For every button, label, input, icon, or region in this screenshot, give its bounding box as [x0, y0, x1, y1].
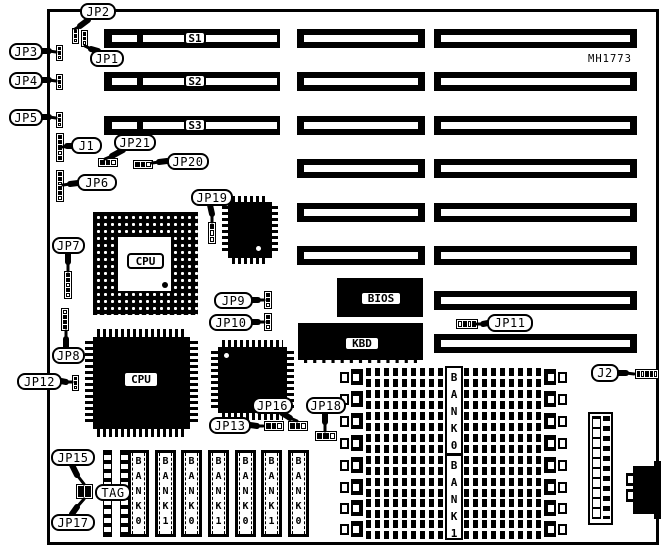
slot-stripe-short [112, 78, 137, 85]
jp10-header-pin-open [266, 325, 270, 329]
expansion-slot-mid [297, 203, 425, 222]
simm-latch-notch [548, 396, 554, 403]
callout-jp17: JP17 [51, 514, 95, 531]
jp12-header-pin-open [74, 386, 77, 389]
jp16-header-pin-closed [290, 423, 295, 429]
sram-socket-4: B A N K 1 [208, 450, 229, 537]
cpu-qfp-pins-right [190, 341, 198, 425]
qfp-small-lower-pins-left [211, 351, 218, 409]
simm-latch-bracket [544, 457, 556, 473]
slot-stripe [441, 340, 630, 347]
qfp-small-upper-pins-right [272, 206, 278, 254]
slot-stripe [304, 165, 418, 172]
simm-pins [464, 390, 542, 409]
jp9-header-pin-open [266, 303, 270, 307]
jp3-header-pin-closed [58, 47, 61, 50]
sram-socket-7: B A N K 0 [288, 450, 309, 537]
jp13-header-pin-closed [266, 423, 271, 429]
jp6-header-pin-closed [58, 177, 62, 181]
j1-header-pin-closed [58, 156, 62, 160]
jp18-header-pin-closed [317, 433, 322, 439]
simm-latch [558, 394, 567, 405]
simm-latch [340, 438, 349, 449]
simm-bank-label: B A N K 0 [445, 366, 463, 455]
callout-jp20: JP20 [167, 153, 209, 170]
slot-stripe [441, 209, 630, 216]
callout-jp21: JP21 [114, 134, 156, 151]
jp7-header [64, 271, 72, 299]
callout-jp19: JP19 [191, 189, 233, 206]
expansion-slot-mid [297, 246, 425, 265]
jp2-header-pin-closed [74, 30, 77, 33]
expansion-slot-right [434, 29, 637, 48]
expansion-slot-mid [297, 159, 425, 178]
jp21-header-pin-closed [100, 160, 105, 165]
simm-pins [366, 390, 445, 409]
jp10-header-pin-closed [266, 320, 270, 324]
simm-latch-notch [548, 526, 554, 533]
simm-pins [464, 412, 542, 431]
qfp-small-upper [228, 202, 272, 258]
simm-latch-bracket [544, 391, 556, 407]
simm-latch-notch [353, 462, 359, 469]
jp8-header-pin-closed [63, 315, 67, 319]
simm-pins [366, 520, 445, 539]
cpu-qfp-pins-left [85, 341, 93, 425]
simm-pins [464, 368, 542, 387]
jp7-header-pin-closed [66, 288, 70, 292]
keyboard-din-connector [633, 466, 661, 514]
expansion-slot-mid [297, 29, 425, 48]
jp16-header-pin-open [301, 423, 306, 429]
slot-stripe [304, 35, 418, 42]
jp11-header-pin-closed [463, 321, 467, 327]
simm-latch-notch [353, 440, 359, 447]
jp4-header-pin-closed [58, 80, 61, 83]
slot-stripe [304, 252, 418, 259]
jp8-header [61, 308, 69, 331]
j1-header [56, 133, 64, 162]
slot-stripe [441, 78, 630, 85]
simm-pins [464, 456, 542, 475]
j2-header-pin-closed [645, 371, 648, 377]
power-connector-pin-column-left [592, 416, 601, 519]
expansion-slot-right [434, 116, 637, 135]
slot-label-s3: S3 [184, 118, 206, 132]
j2-header [635, 369, 659, 379]
jp6-header-pin-closed [58, 172, 62, 176]
jp12-header-pin-closed [74, 377, 77, 380]
simm-latch-bracket [351, 435, 363, 451]
callout-jp15: JP15 [51, 449, 95, 466]
jp21-header-pin-open [111, 160, 116, 165]
simm-latch-bracket [544, 435, 556, 451]
simm-latch-notch [353, 505, 359, 512]
slot-stripe [441, 165, 630, 172]
jp18-header-pin-open [330, 433, 335, 439]
jp20-header [133, 160, 153, 169]
jp2-header [72, 28, 79, 44]
slot-stripe-long [143, 35, 277, 42]
simm-latch [340, 503, 349, 514]
j1-header-pin-closed [58, 145, 62, 149]
simm-latch-bracket [544, 479, 556, 495]
callout-jp1: JP1 [90, 50, 124, 67]
jp6-header-pin-closed [58, 191, 62, 195]
simm-latch-notch [548, 418, 554, 425]
j1-header-pin-closed [58, 135, 62, 139]
keyboard-din-connector-step [654, 512, 661, 519]
qfp-small-lower-pins-top [222, 340, 283, 347]
jp3-header-pin-open [58, 56, 61, 59]
simm-latch [558, 503, 567, 514]
slot-stripe [304, 122, 418, 129]
j1-header-pin-closed [58, 140, 62, 144]
jp21-header [98, 158, 118, 167]
sram-socket-label: B A N K 1 [264, 453, 279, 534]
slot-stripe [304, 78, 418, 85]
jp16-header-pin-closed [296, 423, 301, 429]
jp19-header-pin-closed [210, 224, 214, 229]
power-connector [588, 412, 613, 525]
simm-pins [366, 368, 445, 387]
simm-latch [558, 438, 567, 449]
sram-socket-label: B A N K 1 [158, 453, 173, 534]
expansion-slot-right [434, 72, 637, 91]
bios-rom-label: BIOS [360, 291, 402, 306]
jp7-header-pin-open [66, 283, 70, 287]
callout-jp12: JP12 [17, 373, 62, 390]
simm-latch-notch [353, 374, 359, 381]
cpu-qfp-label: CPU [123, 371, 159, 388]
jp6-header [56, 170, 64, 202]
jp16-header [288, 421, 308, 431]
simm-pins [366, 456, 445, 475]
jp21-header-pin-closed [106, 160, 111, 165]
keyboard-din-connector-tab-notch [628, 476, 633, 483]
jp8-header-pin-closed [63, 325, 67, 329]
callout-jp9: JP9 [214, 292, 253, 309]
jp13-header [264, 421, 284, 431]
simm-latch-bracket [544, 500, 556, 516]
simm-pins [366, 434, 445, 453]
simm-latch-notch [353, 418, 359, 425]
simm-latch-bracket [351, 479, 363, 495]
sram-socket-2: B A N K 1 [155, 450, 176, 537]
callout-j1: J1 [71, 137, 102, 154]
callout-jp2: JP2 [80, 3, 116, 20]
kbd-controller-label: KBD [344, 336, 380, 351]
qfp-small-upper-dot [256, 246, 261, 251]
cpu-socket-pga-dot [162, 282, 168, 288]
callout-jp16: JP16 [252, 397, 293, 414]
sram-socket-6: B A N K 1 [261, 450, 282, 537]
simm-latch [340, 372, 349, 383]
simm-latch-bracket [351, 369, 363, 385]
jp11-header-pin-open [458, 321, 462, 327]
callout-jp8: JP8 [52, 347, 85, 364]
simm-latch [340, 416, 349, 427]
simm-latch [340, 524, 349, 535]
jp5-header-pin-open [58, 123, 61, 126]
jp1-header [81, 30, 88, 47]
slot-label-s2: S2 [184, 74, 206, 88]
simm-latch [340, 482, 349, 493]
sram-socket-label: B A N K 1 [211, 453, 226, 534]
j2-header-pin-open [654, 371, 657, 377]
jp12-header-pin-closed [74, 381, 77, 384]
simm-latch [558, 372, 567, 383]
sram-socket-label: B A N K 0 [184, 453, 199, 534]
jp1-header-pin-closed [83, 37, 86, 41]
slot-stripe-long [143, 78, 277, 85]
slot-stripe-long [143, 122, 277, 129]
jp9-header [264, 291, 272, 309]
simm-latch-notch [353, 484, 359, 491]
jp11-header [456, 319, 478, 329]
simm-pins [366, 412, 445, 431]
slot-stripe [441, 252, 630, 259]
simm-latch-bracket [351, 413, 363, 429]
jp7-header-pin-closed [66, 278, 70, 282]
jp20-header-pin-closed [135, 162, 140, 167]
jp18-header [315, 431, 337, 441]
simm-latch-bracket [351, 457, 363, 473]
cpu-socket-pga-label: CPU [127, 253, 164, 269]
jp4-header-pin-open [58, 85, 61, 88]
slot-stripe [441, 122, 630, 129]
j2-header-pin-closed [637, 371, 640, 377]
simm-pins [366, 478, 445, 497]
jp8-header-pin-closed [63, 320, 67, 324]
expansion-slot-right [434, 291, 637, 310]
qfp-small-upper-pins-bottom [232, 258, 268, 264]
jp5-header-pin-closed [58, 114, 61, 117]
simm-pins [464, 434, 542, 453]
simm-latch-bracket [351, 500, 363, 516]
simm-latch-notch [548, 462, 554, 469]
sram-socket-1: B A N K 0 [128, 450, 149, 537]
power-connector-pin-column-right [603, 416, 610, 519]
keyboard-din-connector-tab [626, 473, 635, 486]
simm-pins [464, 499, 542, 518]
jp4-header-pin-closed [58, 76, 61, 79]
callout-jp6: JP6 [77, 174, 117, 191]
simm-latch-notch [548, 374, 554, 381]
simm-latch-notch [548, 440, 554, 447]
jp20-header-pin-closed [141, 162, 146, 167]
sram-socket-label: B A N K 0 [238, 453, 253, 534]
jp10-header [264, 313, 272, 331]
simm-latch [340, 460, 349, 471]
simm-latch [558, 460, 567, 471]
simm-latch [558, 524, 567, 535]
jp13-header-pin-open [277, 423, 282, 429]
jp2-header-pin-open [74, 39, 77, 42]
jp7-header-pin-closed [66, 273, 70, 277]
expansion-slot-mid [297, 72, 425, 91]
simm-bank-label: B A N K 1 [445, 454, 463, 540]
jp1-header-pin-open [83, 41, 86, 45]
simm-pins [464, 520, 542, 539]
jp19-header-pin-open [210, 237, 214, 242]
jp9-header-pin-closed [266, 293, 270, 297]
callout-jp18: JP18 [306, 397, 346, 414]
qfp-small-lower-dot [224, 353, 229, 358]
expansion-slot-mid [297, 116, 425, 135]
keyboard-din-connector-tab-notch [628, 492, 633, 499]
jp19-header [208, 222, 216, 244]
j1-header-pin-open [58, 151, 62, 155]
slot-label-s1: S1 [184, 31, 206, 45]
expansion-slot-right [434, 246, 637, 265]
jp12-header [72, 375, 79, 391]
slot-stripe [441, 297, 630, 304]
jp10-header-pin-closed [266, 315, 270, 319]
jp8-header-pin-open [63, 310, 67, 314]
sram-socket-5: B A N K 0 [235, 450, 256, 537]
simm-latch [558, 416, 567, 427]
simm-latch-notch [353, 396, 359, 403]
simm-latch-bracket [544, 521, 556, 537]
callout-jp11: JP11 [487, 314, 533, 332]
callout-jp10: JP10 [209, 314, 253, 331]
simm-latch-bracket [351, 391, 363, 407]
jp7-header-pin-open [66, 293, 70, 297]
callout-j2: J2 [591, 364, 619, 382]
simm-latch-bracket [351, 521, 363, 537]
callout-jp3: JP3 [9, 43, 43, 60]
jp6-header-pin-open [58, 182, 62, 186]
jp5-header [56, 112, 63, 128]
jp15-block-pin-closed [85, 486, 91, 497]
cpu-qfp-pins-top [97, 329, 186, 337]
keyboard-din-connector-tab [626, 489, 635, 502]
jp4-header [56, 74, 63, 90]
jp15-block-pin-closed [78, 486, 84, 497]
jp11-header-pin-closed [472, 321, 476, 327]
jp18-header-pin-closed [323, 433, 328, 439]
expansion-slot-right [434, 203, 637, 222]
callout-jp5: JP5 [9, 109, 43, 126]
simm-latch-notch [353, 526, 359, 533]
simm-latch-notch [548, 505, 554, 512]
sram-socket-label: B A N K 0 [131, 453, 146, 534]
jp19-header-pin-open [210, 230, 214, 235]
part-number: MH1773 [588, 53, 632, 65]
motherboard-diagram: MH1773 S1S2S3BIOSKBDCPUCPUTAGB A N K 0B … [0, 0, 668, 552]
j2-header-pin-open [641, 371, 644, 377]
simm-pins [464, 478, 542, 497]
simm-pins [366, 499, 445, 518]
jp6-header-pin-open [58, 196, 62, 200]
cpu-qfp-pins-bottom [97, 429, 186, 437]
expansion-slot-right [434, 159, 637, 178]
callout-jp7: JP7 [52, 237, 85, 254]
jp3-header [56, 45, 63, 61]
jp3-header-pin-closed [58, 51, 61, 54]
j2-header-pin-closed [650, 371, 653, 377]
slot-stripe [441, 35, 630, 42]
slot-stripe-short [112, 122, 137, 129]
slot-stripe [304, 209, 418, 216]
jp2-header-pin-closed [74, 34, 77, 37]
sram-socket-label: B A N K 0 [291, 453, 306, 534]
simm-latch-notch [548, 484, 554, 491]
simm-latch [558, 482, 567, 493]
jp5-header-pin-closed [58, 118, 61, 121]
slot-stripe-short [112, 35, 137, 42]
jp6-header-pin-closed [58, 186, 62, 190]
jp15-block [76, 484, 93, 499]
tag-label: TAG [95, 484, 131, 501]
expansion-slot-right [434, 334, 637, 353]
jp20-header-pin-open [146, 162, 151, 167]
jp13-header-pin-closed [272, 423, 277, 429]
jp11-header-pin-open [468, 321, 472, 327]
sram-socket-3: B A N K 0 [181, 450, 202, 537]
jp9-header-pin-closed [266, 298, 270, 302]
keyboard-din-connector-step [654, 461, 661, 468]
simm-latch-bracket [544, 413, 556, 429]
callout-jp4: JP4 [9, 72, 43, 89]
callout-jp13: JP13 [209, 417, 251, 434]
simm-latch-bracket [544, 369, 556, 385]
jp1-header-pin-closed [83, 32, 86, 36]
